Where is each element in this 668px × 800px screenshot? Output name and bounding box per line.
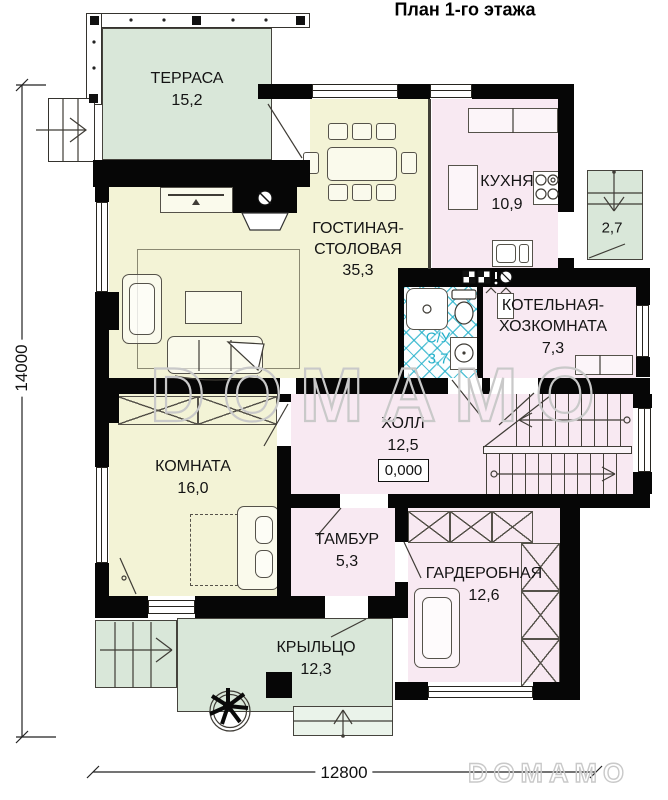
boiler-counter — [575, 355, 633, 375]
room-area-living: 35,3 — [342, 262, 373, 280]
tv-stand — [160, 187, 233, 213]
wall — [482, 378, 490, 394]
kitchen-counter — [468, 108, 558, 133]
room-area-boiler: 7,3 — [542, 340, 564, 358]
closet-cabinet — [521, 639, 560, 687]
stairs-upper-flight — [516, 394, 633, 446]
room-area-room: 16,0 — [177, 480, 208, 498]
room-label-living-2: СТОЛОВАЯ — [314, 241, 402, 259]
wall — [636, 357, 650, 377]
wall — [398, 84, 430, 99]
sink-basin — [519, 244, 529, 263]
dining-chair — [328, 184, 348, 201]
stairs-landing — [483, 446, 632, 454]
room-label-kitchen: КУХНЯ — [480, 173, 533, 191]
room-label-porch: КРЫЛЬЦО — [276, 639, 355, 657]
fireplace-icon — [233, 183, 297, 213]
wall — [277, 394, 291, 402]
floor-plan: План 1-го этажа ТЕРРАСА 15,2 ГОСТИНАЯ- С… — [0, 0, 668, 800]
stove-icon — [533, 171, 559, 205]
room-area-wardrobe: 12,6 — [468, 587, 499, 605]
wall — [477, 287, 483, 378]
sink-basin — [496, 244, 516, 263]
room-area-entry-steps: 2,7 — [602, 220, 623, 237]
bed — [190, 514, 238, 586]
window — [96, 202, 108, 292]
porch-column — [266, 672, 292, 698]
wall — [95, 378, 280, 394]
wall — [558, 84, 574, 212]
wall — [560, 508, 580, 700]
terrace-post — [90, 16, 99, 25]
tambour-floor — [291, 508, 395, 596]
dining-chair — [352, 123, 372, 140]
dining-chair — [328, 123, 348, 140]
page-title: План 1-го этажа — [394, 0, 535, 21]
wall — [633, 472, 652, 494]
washing-machine-icon — [450, 337, 479, 370]
coffee-table — [185, 291, 242, 324]
closet-cabinet — [492, 511, 533, 543]
terrace-railing — [86, 13, 102, 105]
wall — [533, 682, 580, 700]
stairs-lower-flight — [486, 452, 620, 494]
closet-cabinet — [521, 591, 560, 639]
room-area-hall: 12,5 — [387, 437, 418, 455]
sofa — [167, 336, 263, 374]
wall — [398, 268, 650, 287]
room-label-tambour: ТАМБУР — [315, 531, 379, 549]
terrace-post — [192, 16, 201, 25]
elevation-mark: 0,000 — [378, 459, 429, 482]
wall — [95, 378, 119, 423]
window — [148, 600, 195, 614]
wall — [296, 378, 448, 394]
terrace-steps — [48, 98, 95, 162]
room-area-porch: 12,3 — [300, 661, 331, 679]
wall — [95, 563, 109, 596]
wall — [636, 287, 650, 305]
wall — [395, 682, 428, 700]
room-label-hall: ХОЛЛ — [381, 415, 424, 433]
dining-chair — [376, 184, 396, 201]
wardrobe-cabinet — [118, 396, 198, 425]
dining-chair — [401, 152, 417, 174]
window — [96, 467, 108, 563]
porch-front-steps — [293, 706, 393, 736]
dining-chair — [376, 123, 396, 140]
window — [638, 408, 651, 472]
entry-steps-floor — [587, 170, 643, 260]
room-label-boiler-2: ХОЗКОМНАТА — [499, 318, 607, 336]
watermark-corner: DOMAMO — [468, 758, 630, 789]
room-area-tambour: 5,3 — [336, 553, 358, 571]
terrace-post — [296, 16, 305, 25]
wall — [195, 596, 325, 618]
window — [312, 84, 398, 98]
wall — [472, 84, 560, 99]
wall — [283, 494, 340, 508]
pillow — [255, 550, 273, 578]
wall — [258, 84, 312, 99]
room-label-living-1: ГОСТИНАЯ- — [312, 220, 404, 238]
room-label-boiler-1: КОТЕЛЬНАЯ- — [502, 297, 604, 315]
wall — [538, 378, 650, 394]
room-label-wardrobe: ГАРДЕРОБНАЯ — [426, 565, 542, 583]
wall — [95, 423, 109, 467]
dimension-height: 14000 — [12, 339, 32, 396]
closet-cabinet — [408, 511, 450, 543]
partition-wall — [428, 99, 431, 269]
room-area-terrace: 15,2 — [171, 92, 202, 110]
window — [428, 686, 533, 698]
room-area-kitchen: 10,9 — [491, 196, 522, 214]
closet-cabinet — [450, 511, 492, 543]
wall — [95, 330, 109, 378]
wall — [388, 494, 650, 508]
room-label-room: КОМНАТА — [155, 458, 231, 476]
terrace-post — [89, 94, 98, 103]
window — [636, 305, 649, 357]
room-label-terrace: ТЕРРАСА — [151, 70, 224, 88]
room-area-bathroom: 3,7 — [428, 351, 449, 368]
dimension-width: 12800 — [315, 763, 372, 783]
pillow — [255, 516, 273, 544]
dining-table — [327, 147, 397, 181]
wall — [95, 596, 148, 618]
dining-chair — [352, 184, 372, 201]
porch-side-steps — [95, 620, 177, 688]
wardrobe-cabinet — [198, 396, 277, 425]
wall — [633, 394, 652, 408]
wall — [398, 287, 404, 378]
armchair-cushion — [129, 283, 155, 335]
wall — [395, 508, 408, 542]
wall — [95, 292, 119, 330]
kitchen-island — [448, 165, 478, 210]
wall — [368, 596, 408, 618]
bench-sofa-cushion — [422, 597, 452, 659]
window — [430, 84, 472, 98]
wall — [277, 508, 291, 600]
shower-icon — [406, 288, 448, 330]
room-label-bathroom: С/У — [426, 330, 451, 347]
